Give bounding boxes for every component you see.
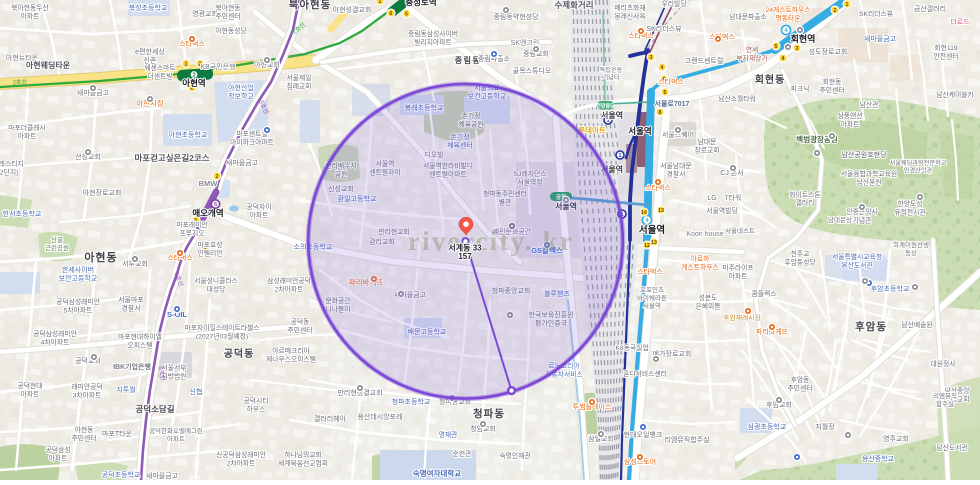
svg-text:동상: 동상 [905,248,917,257]
svg-text:바이쉐라톤: 바이쉐라톤 [637,293,667,302]
svg-text:마포효성: 마포효성 [197,240,222,249]
svg-text:4: 4 [782,56,785,62]
svg-text:봉래신사옥: 봉래신사옥 [614,11,645,20]
svg-text:명재관: 명재관 [439,430,458,439]
svg-text:용산도서관: 용산도서관 [841,260,872,269]
svg-text:한세사이버: 한세사이버 [62,265,94,274]
svg-text:래미안공덕: 래미안공덕 [71,382,102,391]
svg-text:미주라이프: 미주라이프 [722,263,753,272]
svg-text:용산중학교: 용산중학교 [862,454,895,463]
svg-text:새마을금고: 새마을금고 [146,471,179,480]
svg-text:공덕시티: 공덕시티 [243,396,268,405]
svg-text:공덕소담길: 공덕소담길 [135,404,174,414]
svg-text:빌리지아파트: 빌리지아파트 [414,37,452,46]
svg-text:아이파크아파트: 아이파크아파트 [230,137,274,146]
svg-text:아파트: 아파트 [841,119,860,128]
svg-text:쉐센스마트: 쉐센스마트 [144,63,175,72]
svg-text:삼풍앤션: 삼풍앤션 [837,111,862,120]
svg-text:후암재래시장: 후암재래시장 [723,313,761,322]
svg-text:회현역: 회현역 [791,33,816,44]
svg-text:마포현대하이엘: 마포현대하이엘 [118,332,162,341]
svg-text:서울남대문: 서울남대문 [660,161,691,170]
svg-text:연세: 연세 [746,45,759,54]
svg-text:영주교회: 영주교회 [883,434,909,443]
svg-text:1: 1 [379,0,382,5]
svg-text:SK리더스뷰: SK리더스뷰 [859,9,893,18]
svg-text:부자재상가: 부자재상가 [736,53,768,62]
svg-text:2차아파트: 2차아파트 [275,284,304,293]
svg-text:아로하: 아로하 [691,254,711,263]
svg-text:하우스: 하우스 [247,404,266,413]
svg-text:아현동: 아현동 [84,250,117,264]
svg-text:현대오일뱅크: 현대오일뱅크 [624,430,663,439]
svg-text:안경산악관: 안경산악관 [904,167,933,175]
svg-text:서울마포: 서울마포 [118,295,144,304]
svg-text:전망음당: 전망음당 [596,103,615,110]
svg-text:골목스튜디오: 골목스튜디오 [513,66,552,75]
svg-text:서울역: 서울역 [643,301,661,310]
svg-text:스타벅스: 스타벅스 [637,267,663,276]
svg-text:공덕삼성: 공덕삼성 [45,445,70,454]
svg-text:아현장로교회: 아현장로교회 [83,188,122,197]
svg-text:갤러리: 갤러리 [796,198,815,207]
svg-text:14: 14 [641,210,647,216]
svg-text:독립운동: 독립운동 [600,66,623,74]
svg-text:마포래미안: 마포래미안 [176,220,207,229]
svg-text:중림동약현성당: 중림동약현성당 [493,12,539,21]
svg-text:주민센터: 주민센터 [787,383,812,392]
svg-text:기념관: 기념관 [853,215,872,224]
svg-text:아현동성당: 아현동성당 [215,26,246,35]
svg-text:산골: 산골 [51,235,63,244]
svg-text:혼다서비스센터: 혼다서비스센터 [623,369,667,378]
svg-text:2: 2 [834,8,837,14]
svg-text:수제화거리: 수제화거리 [554,0,593,10]
svg-text:숙명인재관: 숙명인재관 [499,451,530,460]
svg-text:마포자이힐스테이트라첼스: 마포자이힐스테이트라첼스 [184,323,259,332]
svg-text:마포T타운: 마포T타운 [102,429,133,438]
svg-text:서울역: 서울역 [601,110,623,120]
svg-text:아파트: 아파트 [49,453,68,462]
svg-text:공덕초등학교: 공덕초등학교 [102,470,141,479]
svg-text:(2단지): (2단지) [0,167,18,176]
svg-text:남산분원: 남산분원 [856,177,881,186]
svg-text:12: 12 [644,243,650,249]
svg-text:용산데시앙포레: 용산데시앙포레 [357,412,402,421]
svg-text:스타벅스: 스타벅스 [709,32,735,41]
svg-text:공덕한화오벨에그린: 공덕한화오벨에그린 [149,426,203,435]
svg-text:SK리더스뷰: SK리더스뷰 [646,24,682,33]
svg-text:게스트하우스: 게스트하우스 [681,262,719,271]
svg-text:스타벅스: 스타벅스 [658,77,684,86]
svg-text:남산소월타워: 남산소월타워 [718,94,756,103]
svg-text:남산케이블카: 남산케이블카 [936,90,974,99]
svg-text:남산관: 남산관 [860,100,879,109]
svg-text:포포인츠: 포포인츠 [640,285,664,294]
svg-text:2차아파트: 2차아파트 [227,458,256,467]
svg-text:3: 3 [650,55,653,61]
svg-text:5: 5 [775,44,778,50]
svg-text:신촌: 신촌 [144,56,157,65]
svg-text:LG: LG [707,195,716,202]
svg-text:안전센터: 안전센터 [933,51,958,60]
svg-text:청파초등학교: 청파초등학교 [392,397,431,406]
svg-text:157: 157 [458,252,472,261]
svg-text:보안고등학교: 보안고등학교 [59,274,98,283]
svg-text:서울역: 서울역 [639,224,665,236]
svg-text:마포더클래시: 마포더클래시 [8,123,46,132]
svg-text:서울로7017: 서울로7017 [655,99,690,108]
svg-text:천주교: 천주교 [791,249,810,258]
svg-text:리엠뮤직: 리엠뮤직 [933,391,957,400]
svg-text:아르떼크리아: 아르떼크리아 [272,346,310,355]
svg-text:명동타운: 명동타운 [775,13,800,22]
svg-text:6: 6 [390,11,393,17]
svg-text:경찰서: 경찰서 [667,169,686,178]
svg-text:서울서부: 서울서부 [161,363,186,372]
svg-text:북아현동두산: 북아현동두산 [11,3,49,12]
svg-text:신협: 신협 [190,387,203,396]
svg-text:후암동: 후암동 [791,376,810,384]
svg-text:5: 5 [405,11,408,17]
svg-text:서울웨딩과학전문학교: 서울웨딩과학전문학교 [890,159,947,167]
svg-text:아현웨딩타운: 아현웨딩타운 [26,60,71,70]
svg-text:아현동: 아현동 [75,425,94,434]
svg-text:새마을금고: 새마을금고 [864,34,897,43]
svg-text:서울제일: 서울제일 [286,73,311,82]
svg-text:아현산업: 아현산업 [228,83,254,92]
svg-text:근린공원: 근린공원 [45,243,69,252]
svg-text:3: 3 [796,46,799,52]
svg-text:제나우스오피스텔: 제나우스오피스텔 [266,354,316,363]
svg-text:성도장로교회: 성도장로교회 [809,47,848,56]
svg-text:한서초등학교: 한서초등학교 [3,209,42,218]
svg-text:후암초등학교: 후암초등학교 [871,284,910,293]
svg-text:서울역빌딩: 서울역빌딩 [706,206,737,215]
svg-text:주민센터: 주민센터 [215,11,240,20]
svg-text:삼성래미안공덕: 삼성래미안공덕 [267,276,311,285]
svg-text:24게스트하우스: 24게스트하우스 [765,5,810,14]
svg-text:지월장: 지월장 [815,422,835,431]
svg-text:남산도서관: 남산도서관 [936,443,967,452]
svg-text:공덕동: 공덕동 [291,317,310,326]
svg-text:후암동: 후암동 [855,320,887,333]
svg-text:공덕동: 공덕동 [224,347,255,360]
svg-text:하나님의교회: 하나님의교회 [284,450,322,459]
svg-text:희계이원선생: 희계이원선생 [893,240,929,249]
svg-text:남대문: 남대문 [698,137,717,146]
svg-text:5: 5 [664,90,667,96]
svg-text:rivercity. kr: rivercity. kr [408,226,574,256]
svg-text:순헌관: 순헌관 [453,449,472,458]
svg-text:대성당: 대성당 [207,284,226,293]
svg-text:프레스티지: 프레스티지 [0,159,24,168]
svg-text:새마을금고: 새마을금고 [226,158,259,167]
svg-text:Koon house: Koon house [686,231,723,238]
svg-text:5: 5 [214,202,217,208]
svg-text:1: 1 [846,2,849,8]
svg-text:경찰서: 경찰서 [121,304,140,313]
svg-text:회현동: 회현동 [823,78,842,86]
svg-text:지투월: 지투월 [116,385,135,394]
svg-text:금산갤러리: 금산갤러리 [914,4,946,13]
svg-text:애오개역: 애오개역 [192,208,223,218]
svg-text:프루지오: 프루지오 [179,228,204,237]
svg-text:청파동: 청파동 [473,407,505,420]
svg-text:세계복음선교협회: 세계복음선교협회 [278,458,328,467]
svg-text:충정로역: 충정로역 [405,0,436,7]
svg-text:주민센터: 주민센터 [819,85,844,94]
svg-text:중림동삼성사이버: 중림동삼성사이버 [408,29,458,38]
svg-text:4차아파트: 4차아파트 [41,337,70,346]
svg-text:유적전시관: 유적전시관 [894,207,925,216]
svg-text:서울네스트: 서울네스트 [725,226,755,235]
svg-text:아파트: 아파트 [167,434,185,443]
svg-text:은혜의뜰: 은혜의뜰 [695,301,720,310]
svg-text:콤플렉스: 콤플렉스 [751,289,776,298]
svg-text:아현역: 아현역 [182,78,205,88]
svg-text:더로드: 더로드 [950,17,970,26]
svg-text:아파트: 아파트 [18,131,37,140]
svg-text:메리츠화재: 메리츠화재 [614,3,645,12]
svg-text:갤러리헤아: 갤러리헤아 [314,414,347,423]
svg-text:1: 1 [185,61,188,67]
svg-text:피크닉: 피크닉 [791,84,810,93]
svg-text:13: 13 [658,208,664,214]
svg-text:아파트: 아파트 [729,271,748,280]
svg-text:13: 13 [651,240,657,246]
svg-text:북아현동: 북아현동 [289,0,332,11]
svg-text:정보학교: 정보학교 [228,92,254,101]
svg-text:IBK기업은행: IBK기업은행 [113,362,151,371]
svg-text:기념터: 기념터 [602,74,619,82]
svg-text:남산공원호현당: 남산공원호현당 [841,150,887,159]
svg-text:삼광초등학교: 삼광초등학교 [748,422,787,431]
svg-text:주민센터: 주민센터 [71,433,96,442]
svg-text:오피스텔: 오피스텔 [127,340,152,349]
svg-text:3차아파트: 3차아파트 [73,390,102,399]
svg-text:인텔리안: 인텔리안 [197,248,222,257]
svg-text:아파트: 아파트 [250,210,269,219]
svg-text:5차아파트: 5차아파트 [64,305,93,314]
svg-text:T타워: T타워 [725,193,742,202]
svg-text:8: 8 [659,110,662,116]
svg-text:남산예술원: 남산예술원 [901,320,932,329]
svg-text:1: 1 [618,153,621,159]
svg-text:남대문파출소: 남대문파출소 [729,12,767,21]
svg-text:공덕삼성래미안: 공덕삼성래미안 [33,329,77,338]
svg-text:북성초등학교: 북성초등학교 [129,3,168,12]
svg-text:e편한세상: e편한세상 [135,47,165,56]
svg-text:서울역: 서울역 [628,126,651,136]
svg-text:BMW: BMW [199,179,219,188]
svg-text:서울특별시교육청: 서울특별시교육청 [832,252,882,261]
svg-text:성분도: 성분도 [699,293,718,302]
svg-text:리엠뮤직합주실: 리엠뮤직합주실 [664,435,709,444]
svg-text:아현성결교회: 아현성결교회 [333,5,372,14]
svg-text:공덕삼성래미안: 공덕삼성래미안 [56,297,100,306]
svg-text:신공덕삼성래미안: 신공덕삼성래미안 [216,450,266,459]
svg-text:후암동성당: 후암동성당 [784,257,815,266]
svg-text:(2027년03월예정): (2027년03월예정) [196,331,248,340]
svg-text:숙명여자대학교: 숙명여자대학교 [413,468,461,478]
svg-text:공덕현대: 공덕현대 [17,381,42,390]
svg-text:대원정사: 대원정사 [930,359,956,368]
svg-text:서울융합과학교육원: 서울융합과학교육원 [841,169,897,178]
svg-text:북아현동: 북아현동 [215,3,240,12]
svg-text:서울성니콜라스: 서울성니콜라스 [194,276,238,285]
svg-text:합주실: 합주실 [936,399,954,408]
svg-text:침례교회: 침례교회 [286,81,311,90]
svg-text:장로교회: 장로교회 [694,145,719,154]
svg-text:우리빌딩: 우리빌딩 [661,0,686,8]
svg-text:KB국민은행: KB국민은행 [200,62,235,71]
svg-text:아파트: 아파트 [21,11,40,20]
svg-text:회현119: 회현119 [934,44,958,52]
svg-text:아파트: 아파트 [21,389,40,398]
svg-text:회현동: 회현동 [755,73,786,86]
svg-text:4: 4 [661,65,664,71]
svg-text:공덕자이: 공덕자이 [246,202,271,211]
svg-text:아현초등학교: 아현초등학교 [169,130,208,139]
svg-text:화이트스톤: 화이트스톤 [789,190,820,199]
svg-text:영광교회: 영광교회 [192,9,218,18]
svg-text:더센트빌: 더센트빌 [147,71,172,80]
svg-text:주민센터: 주민센터 [287,325,312,334]
svg-text:마포걷고싶은길2코스: 마포걷고싶은길2코스 [134,153,209,163]
svg-text:K8동국실업: K8동국실업 [615,343,648,352]
svg-text:그랜드센트럴: 그랜드센트럴 [685,56,724,65]
